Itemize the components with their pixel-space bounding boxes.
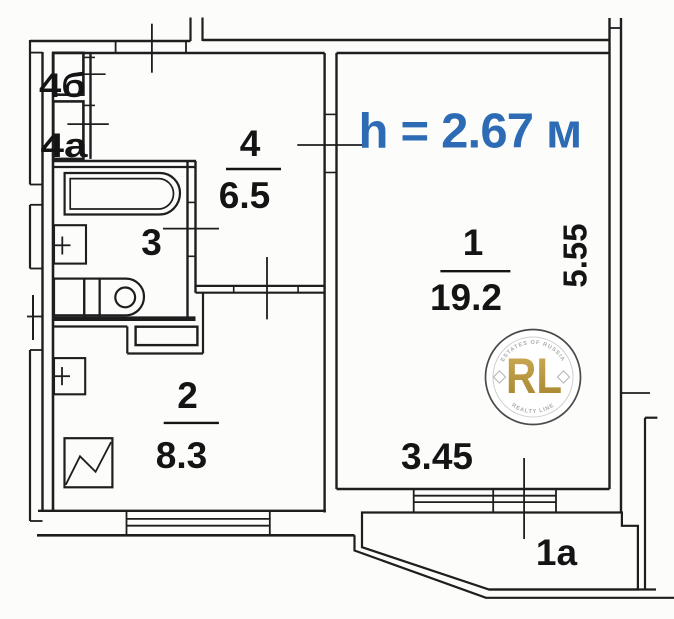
svg-text:3.45: 3.45 <box>401 436 473 477</box>
svg-text:8.3: 8.3 <box>156 435 207 476</box>
svg-text:3: 3 <box>141 222 162 263</box>
svg-text:4б: 4б <box>39 67 86 105</box>
svg-text:2: 2 <box>177 375 198 416</box>
svg-text:1: 1 <box>463 222 484 263</box>
svg-text:4a: 4a <box>41 127 89 165</box>
svg-text:4: 4 <box>240 123 261 164</box>
svg-text:1a: 1a <box>536 532 578 573</box>
svg-text:6.5: 6.5 <box>219 175 270 216</box>
svg-text:5.55: 5.55 <box>557 223 594 287</box>
svg-text:RL: RL <box>506 348 562 404</box>
svg-text:19.2: 19.2 <box>430 277 502 318</box>
svg-text:h = 2.67 м: h = 2.67 м <box>359 105 582 159</box>
